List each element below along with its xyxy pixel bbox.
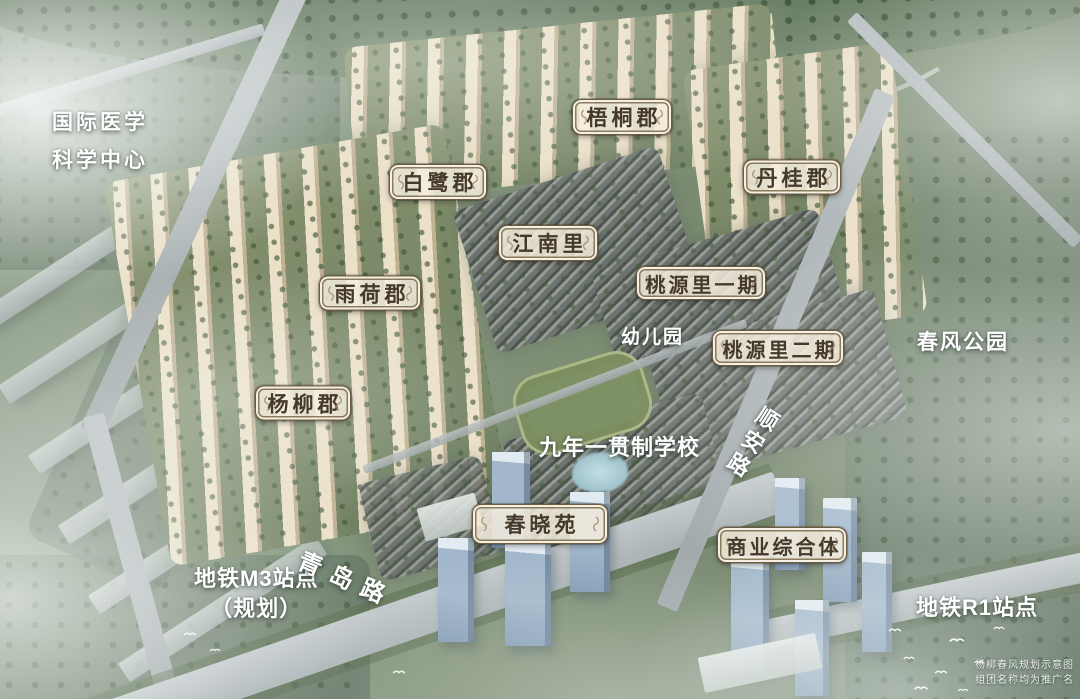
bird-icon (209, 647, 221, 654)
plaque-label: 桃源里二期 (719, 334, 838, 363)
scroll-ornament-icon (827, 339, 837, 357)
scroll-ornament-icon (334, 394, 344, 412)
plaque-wutongjun: 梧桐郡 (572, 99, 672, 135)
plaque-label: 杨柳郡 (264, 388, 343, 418)
plaque-label: 雨荷郡 (331, 278, 410, 308)
bird-icon (921, 611, 932, 617)
bird-icon (973, 659, 984, 665)
office-tower (505, 542, 551, 646)
bird-flock-icon (880, 598, 1040, 698)
scroll-ornament-icon (655, 108, 665, 126)
bird-icon (934, 668, 948, 676)
label-medical-center-line1: 国际医学 (52, 104, 148, 142)
plaque-danguijun: 丹桂郡 (743, 160, 841, 195)
scroll-ornament-icon (470, 173, 480, 191)
bird-icon (957, 687, 969, 694)
label-metro-m3-line2: （规划） (194, 594, 319, 624)
bird-icon (392, 668, 406, 676)
plaque-taoyuanli-phase2: 桃源里二期 (712, 330, 844, 366)
plaque-yangliujun: 杨柳郡 (255, 386, 351, 421)
plaque-label: 商业综合体 (723, 531, 842, 560)
scroll-ornament-icon (591, 515, 601, 533)
plaque-label: 江南里 (509, 228, 588, 258)
bird-icon (993, 624, 1006, 631)
plaque-bailujun: 白鹭郡 (389, 164, 487, 200)
bird-icon (888, 626, 902, 634)
scroll-ornament-icon (830, 536, 840, 554)
bird-icon (949, 635, 966, 645)
plaque-label: 春晓苑 (501, 509, 580, 539)
label-chunfeng-park: 春风公园 (917, 326, 1009, 356)
label-kindergarten: 幼儿园 (621, 322, 684, 349)
scroll-ornament-icon (404, 284, 414, 302)
plaque-label: 丹桂郡 (753, 162, 832, 192)
label-medical-center: 国际医学 科学中心 (52, 104, 148, 180)
scroll-ornament-icon (824, 168, 834, 186)
scroll-ornament-icon (479, 515, 489, 533)
bird-icon (183, 630, 197, 638)
label-school: 九年一贯制学校 (539, 430, 700, 462)
office-tower (438, 538, 474, 642)
scroll-ornament-icon (749, 274, 759, 292)
plaque-commercial-complex: 商业综合体 (717, 527, 847, 563)
plaque-taoyuanli-phase1: 桃源里一期 (636, 266, 766, 300)
plaque-label: 梧桐郡 (583, 102, 662, 132)
plaque-yuhejun: 雨荷郡 (319, 276, 421, 311)
scroll-ornament-icon (581, 234, 591, 252)
plaque-jiangnanli: 江南里 (498, 225, 598, 261)
bird-icon (903, 654, 916, 661)
plaque-label: 白鹭郡 (399, 167, 478, 197)
bird-icon (913, 684, 928, 693)
plaque-chunxiaoyuan: 春晓苑 (472, 504, 608, 544)
label-medical-center-line2: 科学中心 (52, 142, 148, 180)
masterplan-aerial-rendering: 梧桐郡 丹桂郡 白鹭郡 江南里 雨荷郡 桃源里一期 桃源里二期 杨柳郡 (0, 0, 1080, 699)
plaque-label: 桃源里一期 (642, 269, 761, 298)
